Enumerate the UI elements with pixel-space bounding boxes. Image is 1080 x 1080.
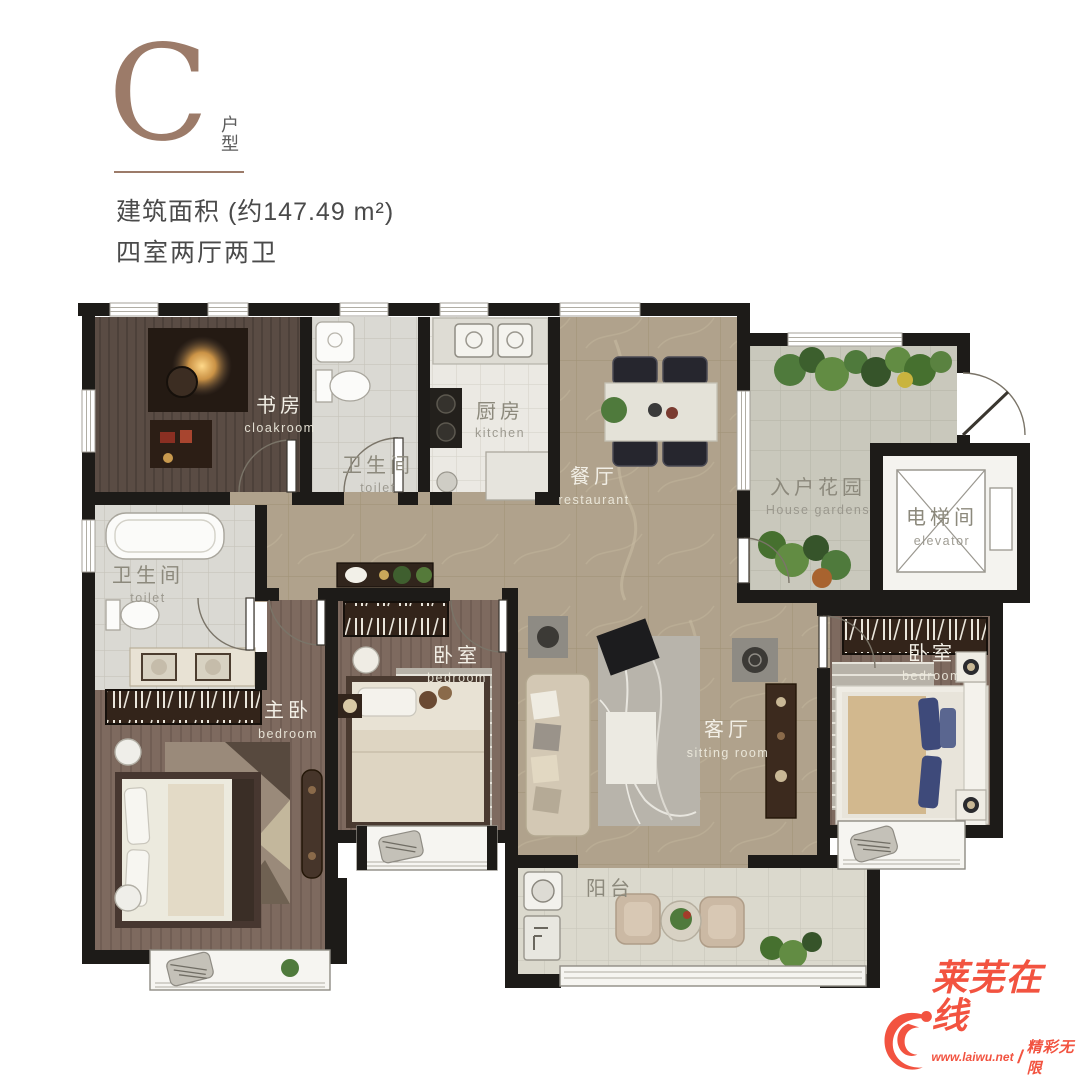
label-bedroom-mid-en: bedroom <box>427 671 487 685</box>
master-stool-bottom <box>115 885 141 911</box>
label-study-en: cloakroom <box>244 421 315 435</box>
window <box>340 303 388 316</box>
window <box>82 520 95 572</box>
bay-window-master <box>150 950 330 990</box>
label-toilet-top-zh: 卫生间 <box>342 454 414 477</box>
window <box>208 303 248 316</box>
label-dining-zh: 餐厅 <box>570 465 618 488</box>
label-kitchen-zh: 厨房 <box>476 400 524 423</box>
label-bedroom-mid-zh: 卧室 <box>433 644 481 667</box>
label-bedroom-right-zh: 卧室 <box>908 642 956 665</box>
toilet-top-basin <box>316 322 354 362</box>
laiwu-swirl-icon <box>881 1004 937 1078</box>
dining-chair <box>663 357 707 385</box>
label-elevator-zh: 电梯间 <box>906 506 978 529</box>
room-bedroom-mid <box>338 600 505 831</box>
label-kitchen-en: kitchen <box>475 426 525 440</box>
unit-letter: C <box>108 28 209 160</box>
label-toilet-left-zh: 卫生间 <box>112 564 184 587</box>
bedroom-right-nightstand-bottom <box>956 790 986 820</box>
unit-type-label: 户型 <box>221 116 241 154</box>
building-area-text: 建筑面积 (约147.49 m²) <box>116 192 394 228</box>
room-balcony <box>518 868 867 974</box>
dining-chair <box>663 438 707 466</box>
dining-chair <box>613 438 657 466</box>
living-planter-stool <box>732 638 778 682</box>
balcony-washer <box>524 872 562 960</box>
label-garden-zh: 入户花园 <box>770 476 866 499</box>
watermark-brand: 莱芜在线 <box>931 959 1076 1035</box>
watermark-slash: / <box>1018 1047 1023 1068</box>
window <box>737 391 750 490</box>
kitchen-small-sink <box>437 472 457 492</box>
label-study-zh: 书房 <box>256 394 304 417</box>
header-underline <box>114 171 244 173</box>
dining-chair <box>613 357 657 385</box>
elevator-panel <box>990 488 1012 550</box>
study-cabinet <box>150 420 212 468</box>
bay-window-bedroom-right <box>838 821 965 869</box>
toilet-left-double-sink <box>130 648 255 686</box>
balcony-railing <box>560 966 866 986</box>
balcony-chair-right-cushion <box>708 905 736 939</box>
living-side-table <box>528 616 568 658</box>
label-toilet-left-en: toilet <box>130 591 165 605</box>
window <box>110 303 158 316</box>
bedroom-mid-stool <box>353 647 379 673</box>
label-garden-en: House gardens <box>766 503 870 517</box>
label-dining-en: restaurant <box>558 493 629 507</box>
window <box>788 333 902 346</box>
watermark-slogan: 精彩无限 <box>1027 1036 1076 1078</box>
toilet-top-wc <box>316 370 370 402</box>
bay-plant <box>281 959 299 977</box>
living-sofa <box>526 674 590 836</box>
label-master-en: bedroom <box>258 727 318 741</box>
hallway-console <box>337 563 433 587</box>
bedroom-mid-bed <box>346 676 490 828</box>
window <box>82 390 95 452</box>
master-wardrobe <box>106 690 261 724</box>
kitchen-stove <box>430 388 462 448</box>
room-layout-text: 四室两厅两卫 <box>116 233 278 269</box>
label-elevator-en: elevator <box>914 534 970 548</box>
label-bedroom-right-en: bedroom <box>902 669 962 683</box>
window <box>560 303 640 316</box>
study-chair <box>167 367 197 397</box>
master-stool-top <box>115 739 141 765</box>
room-toilet-left <box>95 505 255 690</box>
label-living-zh: 客厅 <box>704 718 752 741</box>
door-entry <box>963 373 1025 435</box>
window <box>440 303 488 316</box>
balcony-chair-left-cushion <box>624 902 652 936</box>
bedroom-mid-wardrobe <box>344 602 448 636</box>
bay-window-bedroom-mid <box>357 826 497 870</box>
living-tv-cabinet <box>766 684 796 818</box>
watermark-url: www.laiwu.net <box>931 1050 1013 1064</box>
dining-table-plant <box>601 397 627 423</box>
label-living-en: sitting room <box>687 746 770 760</box>
label-toilet-top-en: toilet <box>360 481 395 495</box>
toilet-left-bathtub <box>106 513 224 559</box>
balcony-table <box>661 901 701 941</box>
watermark: 莱芜在线 www.laiwu.net / 精彩无限 <box>881 998 1076 1078</box>
label-balcony-zh: 阳台 <box>586 877 634 900</box>
plan-header: C 户型 建筑面积 (约147.49 m²) 四室两厅两卫 <box>0 0 500 300</box>
label-master-zh: 主卧 <box>264 699 312 722</box>
